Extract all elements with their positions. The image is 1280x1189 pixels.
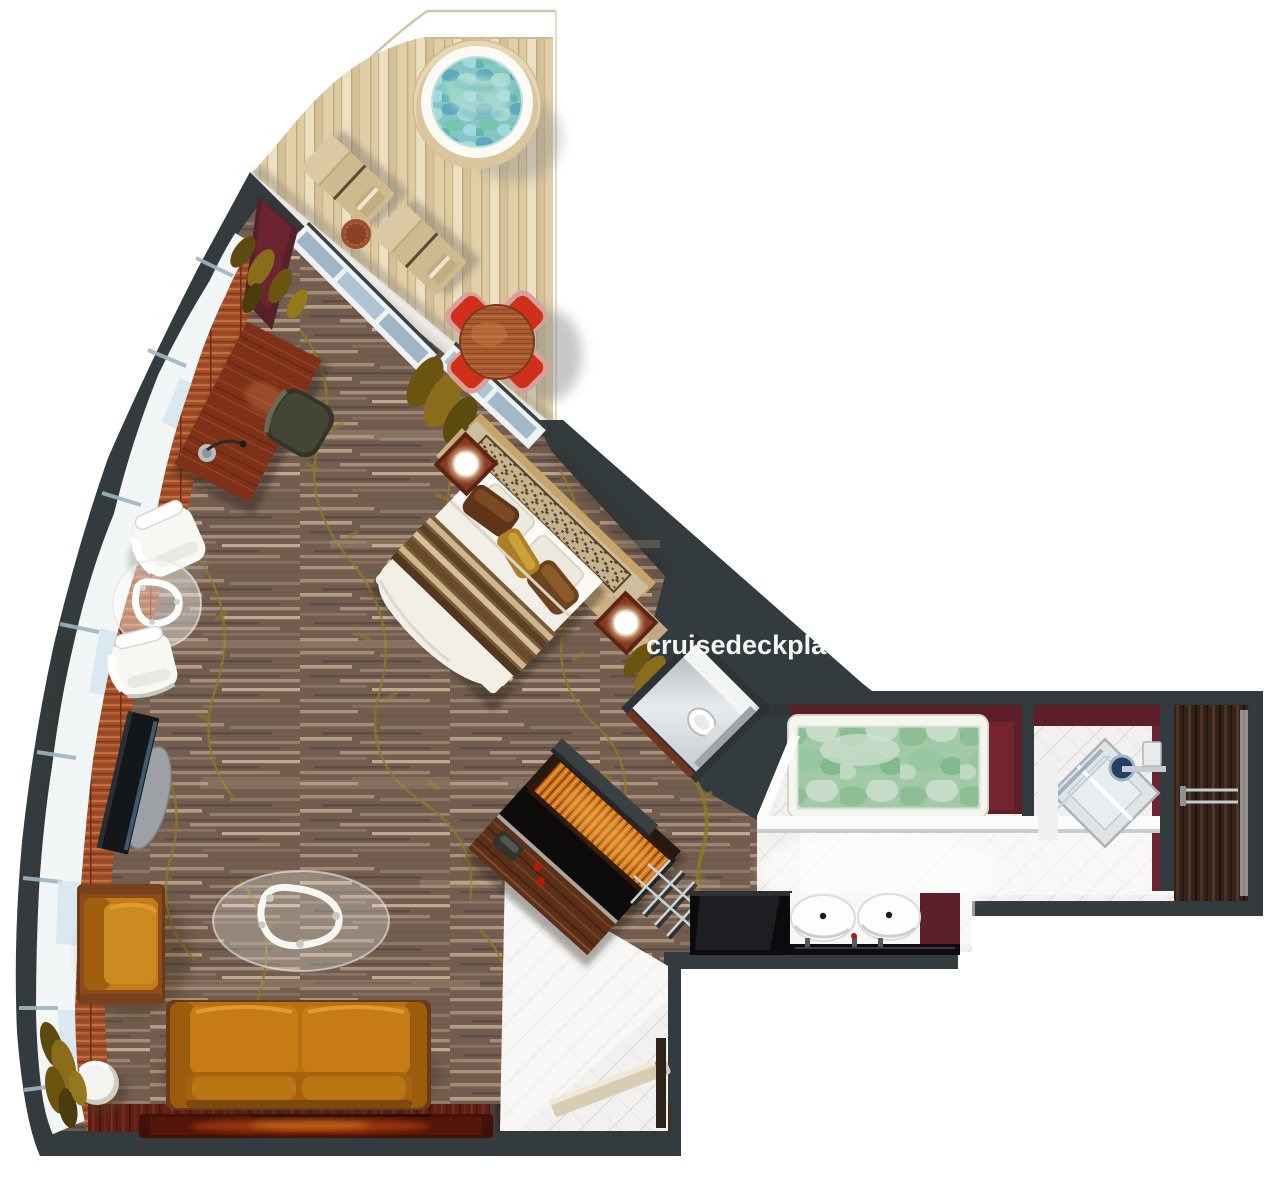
svg-text:cruisedeckpla: cruisedeckpla: [646, 630, 827, 660]
